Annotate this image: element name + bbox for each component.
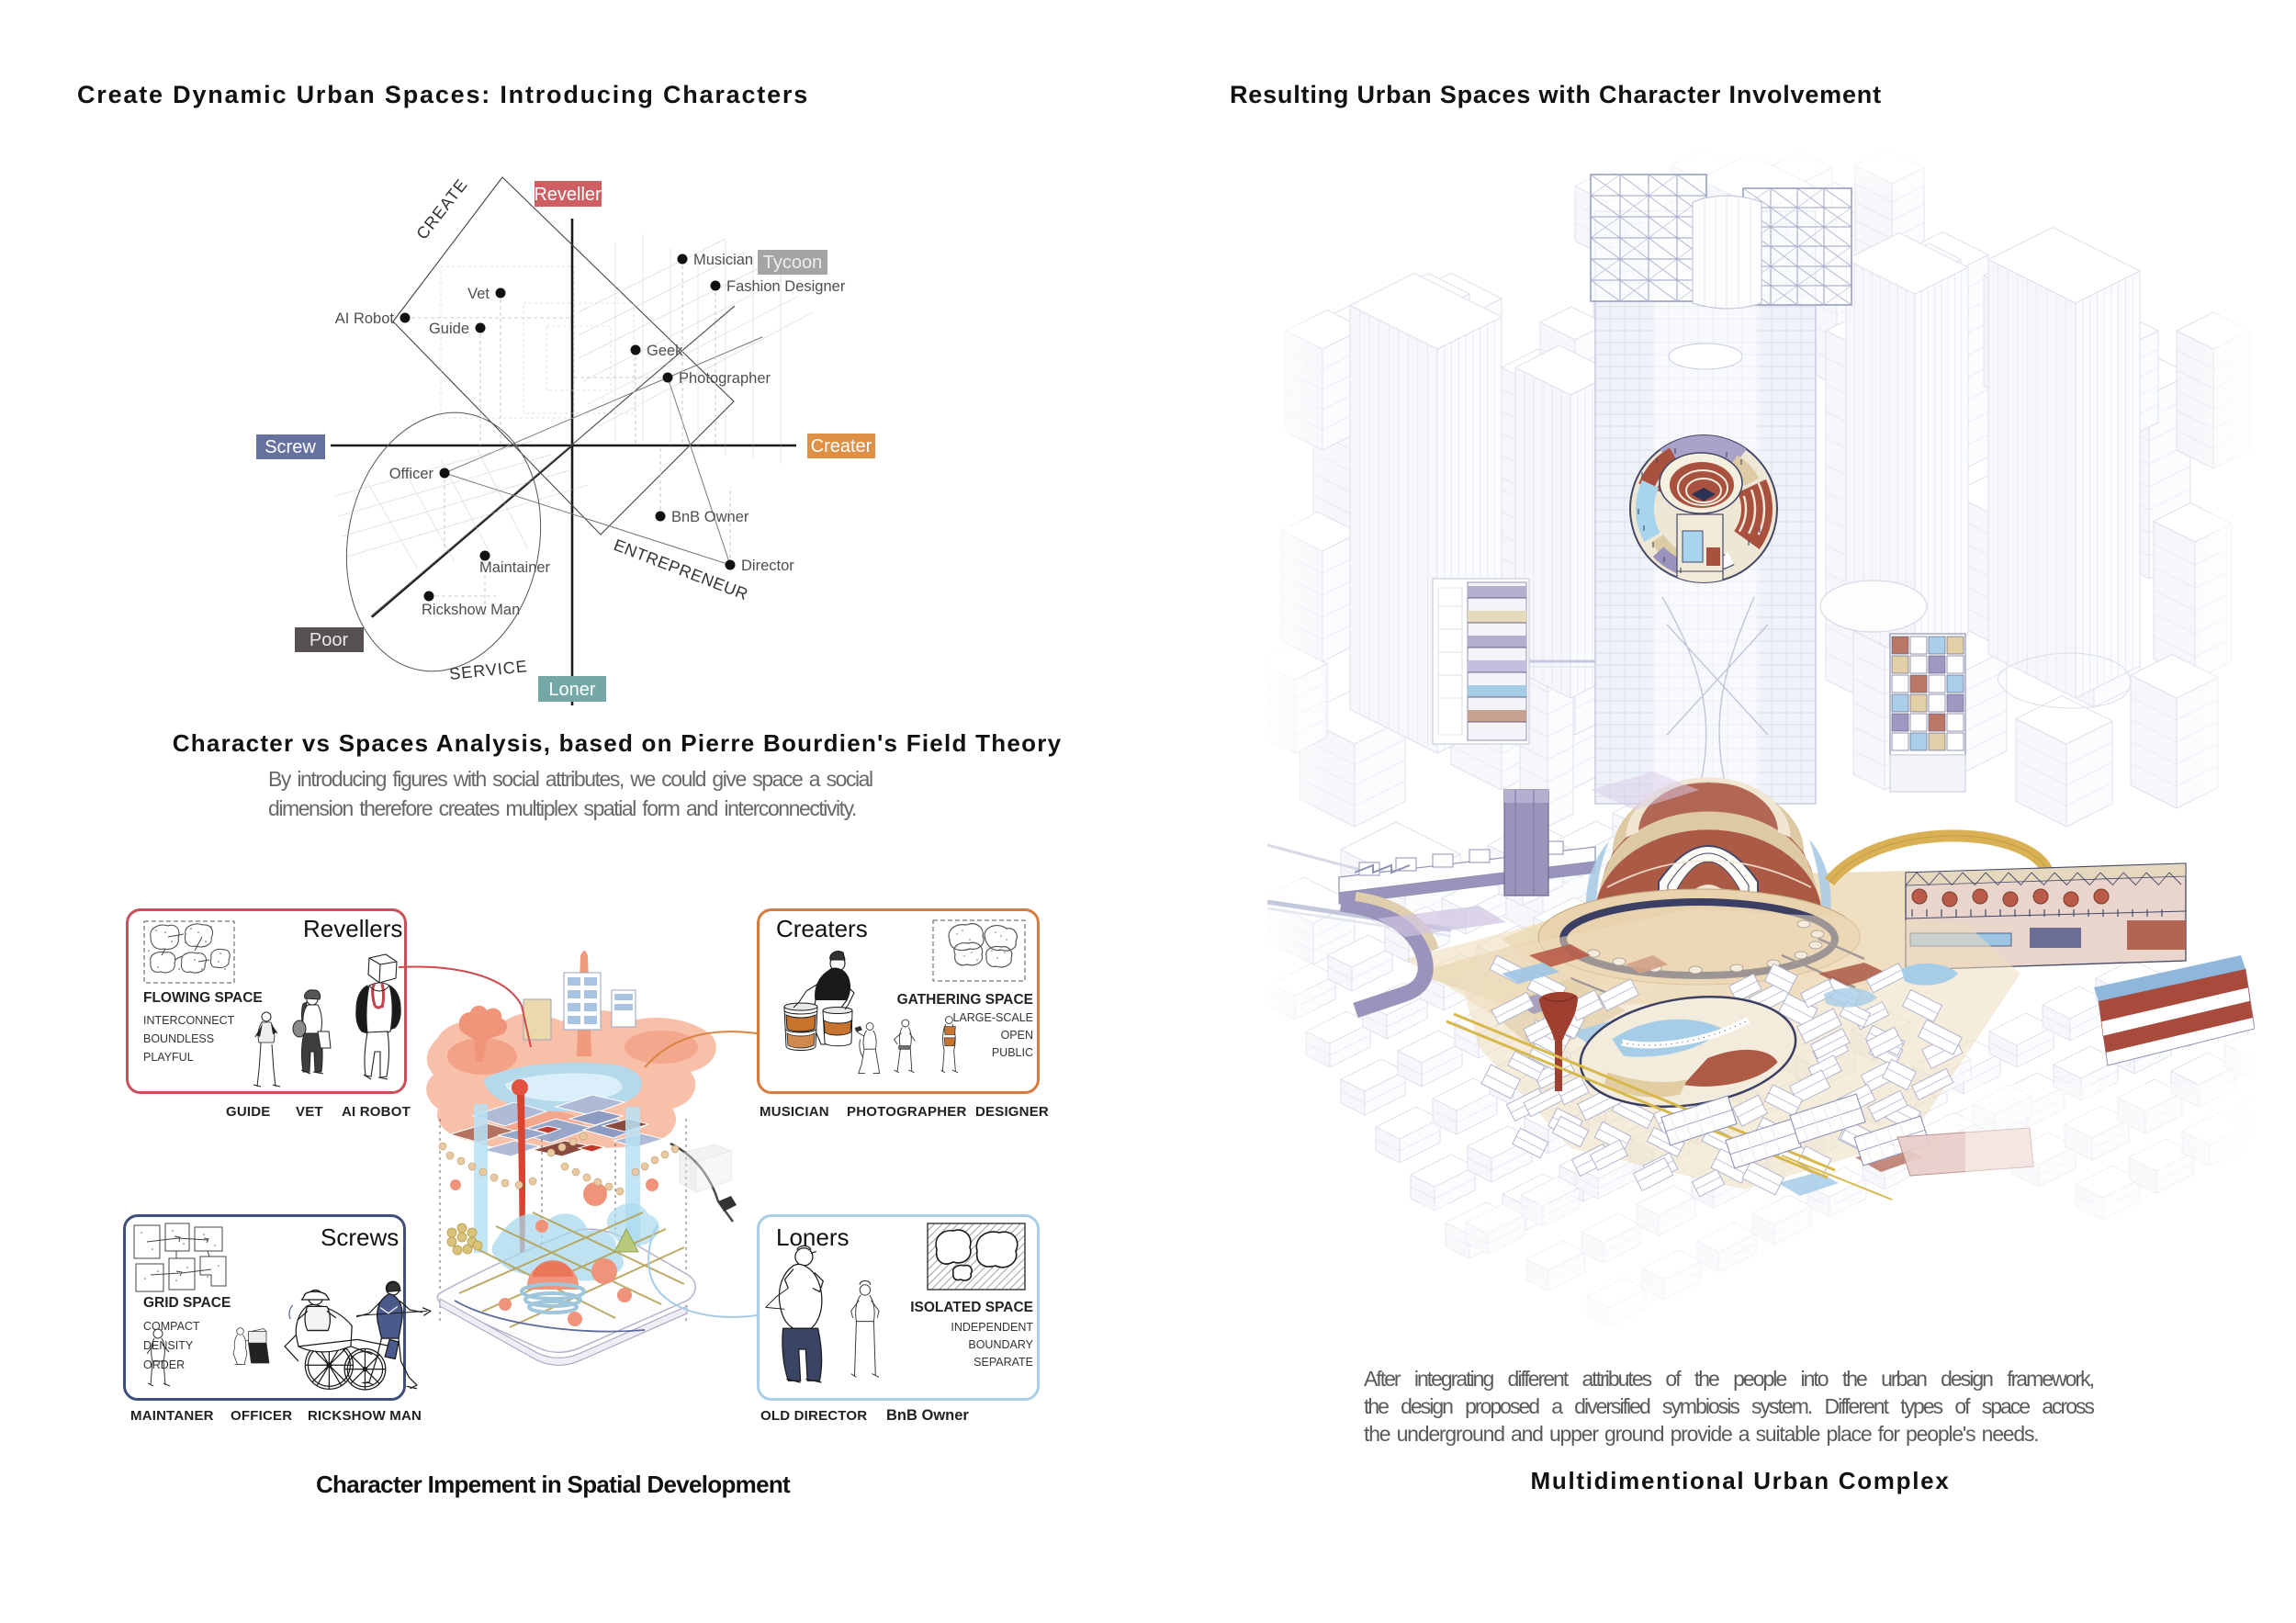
svg-text:Photographer: Photographer [679, 370, 771, 387]
svg-text:Loner: Loner [548, 680, 595, 700]
svg-text:Rickshow Man: Rickshow Man [422, 602, 520, 618]
svg-text:CREATE: CREATE [412, 175, 471, 243]
svg-text:Creater: Creater [811, 436, 872, 456]
svg-text:Reveller: Reveller [534, 185, 602, 205]
svg-text:Maintainer: Maintainer [479, 559, 551, 576]
svg-text:SERVICE: SERVICE [448, 657, 528, 683]
svg-text:Officer: Officer [389, 466, 434, 482]
svg-text:AI Robot: AI Robot [335, 310, 395, 327]
svg-text:Guide: Guide [429, 321, 469, 337]
svg-text:BnB Owner: BnB Owner [671, 509, 749, 525]
svg-text:Geek: Geek [647, 343, 683, 359]
svg-text:Screw: Screw [264, 437, 316, 457]
svg-text:Poor: Poor [310, 630, 349, 650]
svg-text:Director: Director [741, 558, 794, 574]
svg-text:Fashion Designer: Fashion Designer [726, 278, 846, 295]
svg-text:Musician: Musician [693, 252, 753, 268]
svg-text:Tycoon: Tycoon [763, 253, 822, 273]
svg-text:Vet: Vet [467, 286, 490, 302]
